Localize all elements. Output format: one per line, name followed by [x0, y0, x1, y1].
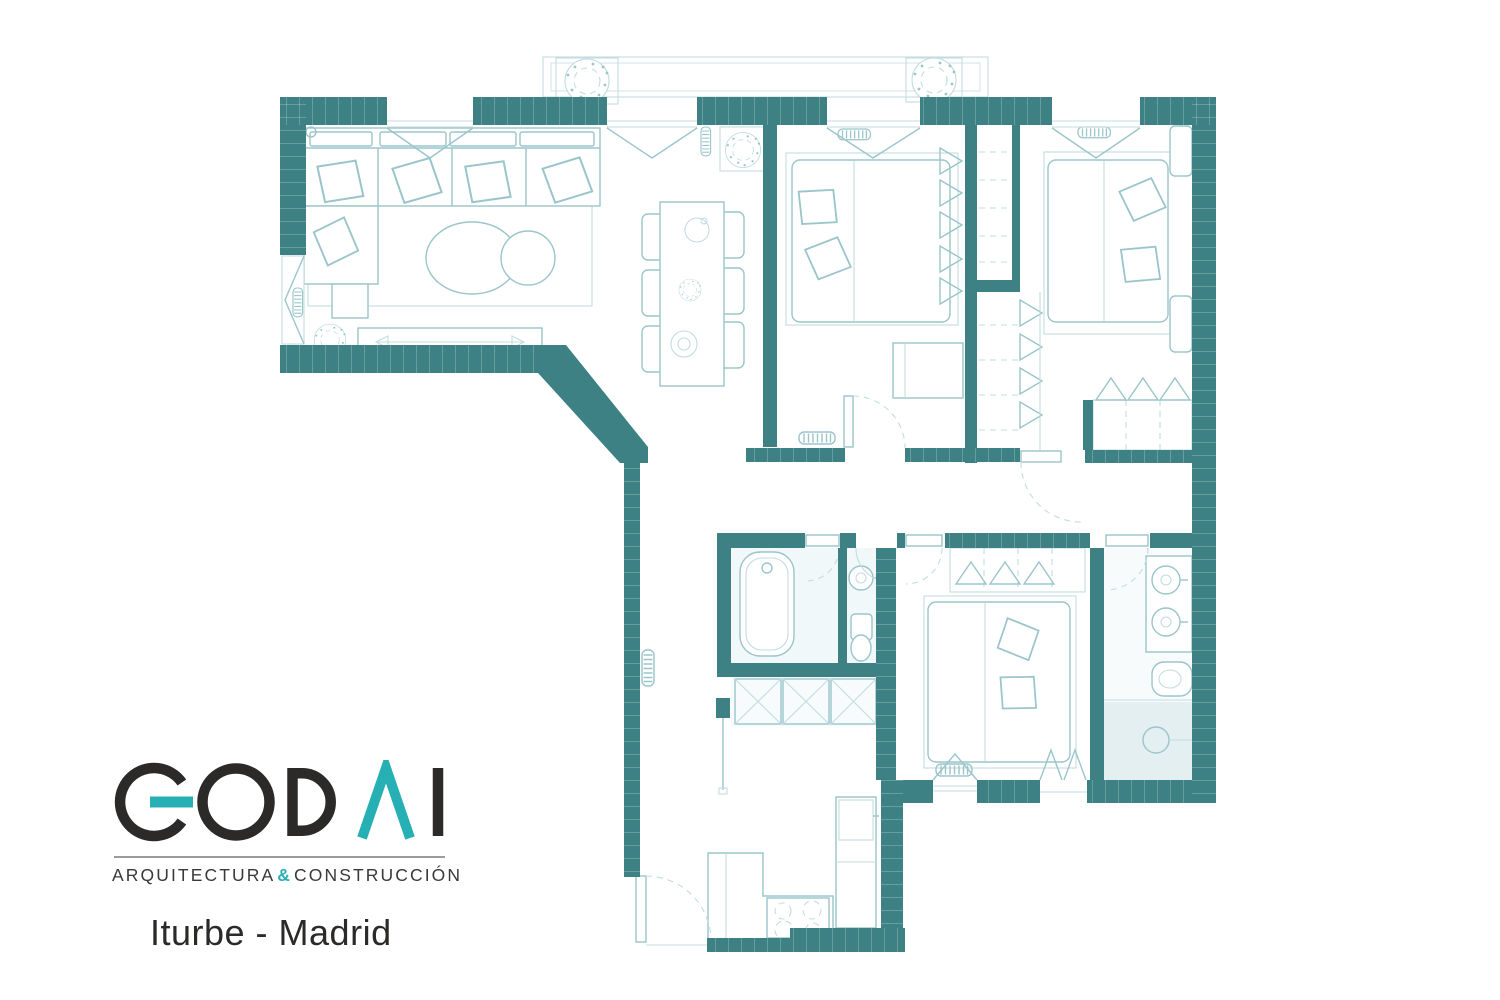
door-leaf [806, 535, 839, 546]
door-swing [853, 396, 905, 448]
door-swing [906, 548, 942, 584]
g-crossbar [150, 797, 193, 808]
letter-A [362, 768, 410, 838]
radiator [642, 650, 654, 686]
letter-D [293, 768, 331, 836]
hallway [642, 650, 654, 686]
french-door [282, 256, 304, 344]
coffee-table-small [501, 231, 555, 285]
bed [792, 160, 950, 322]
tagline-ampersand: & [277, 865, 292, 886]
bathtub [740, 552, 794, 656]
godai-wordmark [112, 760, 452, 848]
bedroom-1 [786, 148, 963, 448]
side-table [332, 284, 368, 318]
wardrobe [950, 548, 1085, 592]
entry-door-leaf [636, 876, 646, 942]
built-in-wardrobe [979, 152, 1042, 450]
balcony-plant-left [565, 59, 609, 103]
radiator [701, 127, 711, 156]
dining-area [642, 202, 744, 386]
nightstand [1170, 126, 1192, 176]
door-leaf [906, 535, 942, 546]
wardrobe [1093, 378, 1192, 450]
wash-basin [1152, 566, 1180, 594]
logo-rule [114, 856, 445, 858]
kitchen [636, 797, 879, 945]
bidet [1152, 662, 1192, 696]
entry-door-swing [646, 876, 711, 941]
radiator [799, 432, 835, 444]
radiator [838, 129, 870, 140]
door-leaf [1021, 451, 1061, 462]
door-leaf [844, 396, 853, 447]
logo: GODAI ARQUITECTURA & CONSTRUCCIÓN Iturbe… [112, 760, 472, 954]
tagline-right: CONSTRUCCIÓN [294, 865, 462, 886]
nightstand [1170, 296, 1192, 352]
balcony [543, 57, 988, 104]
wash-basin [849, 566, 873, 590]
window [607, 121, 697, 158]
wash-basin [1152, 608, 1180, 636]
tagline-left: ARQUITECTURA [112, 865, 275, 886]
bed [928, 602, 1070, 762]
master-bedroom [906, 535, 1087, 792]
letter-O [203, 769, 270, 836]
letter-G [120, 768, 193, 836]
page: GODAI ARQUITECTURA & CONSTRUCCIÓN Iturbe… [0, 0, 1500, 1000]
door-leaf [1106, 535, 1148, 546]
plant [725, 132, 760, 167]
desk [893, 343, 963, 398]
radiator [1078, 127, 1110, 138]
door-swing [1021, 462, 1081, 522]
balcony-plant-right [912, 58, 956, 102]
tagline: ARQUITECTURA & CONSTRUCCIÓN [112, 865, 446, 886]
project-title: Iturbe - Madrid [150, 912, 472, 954]
